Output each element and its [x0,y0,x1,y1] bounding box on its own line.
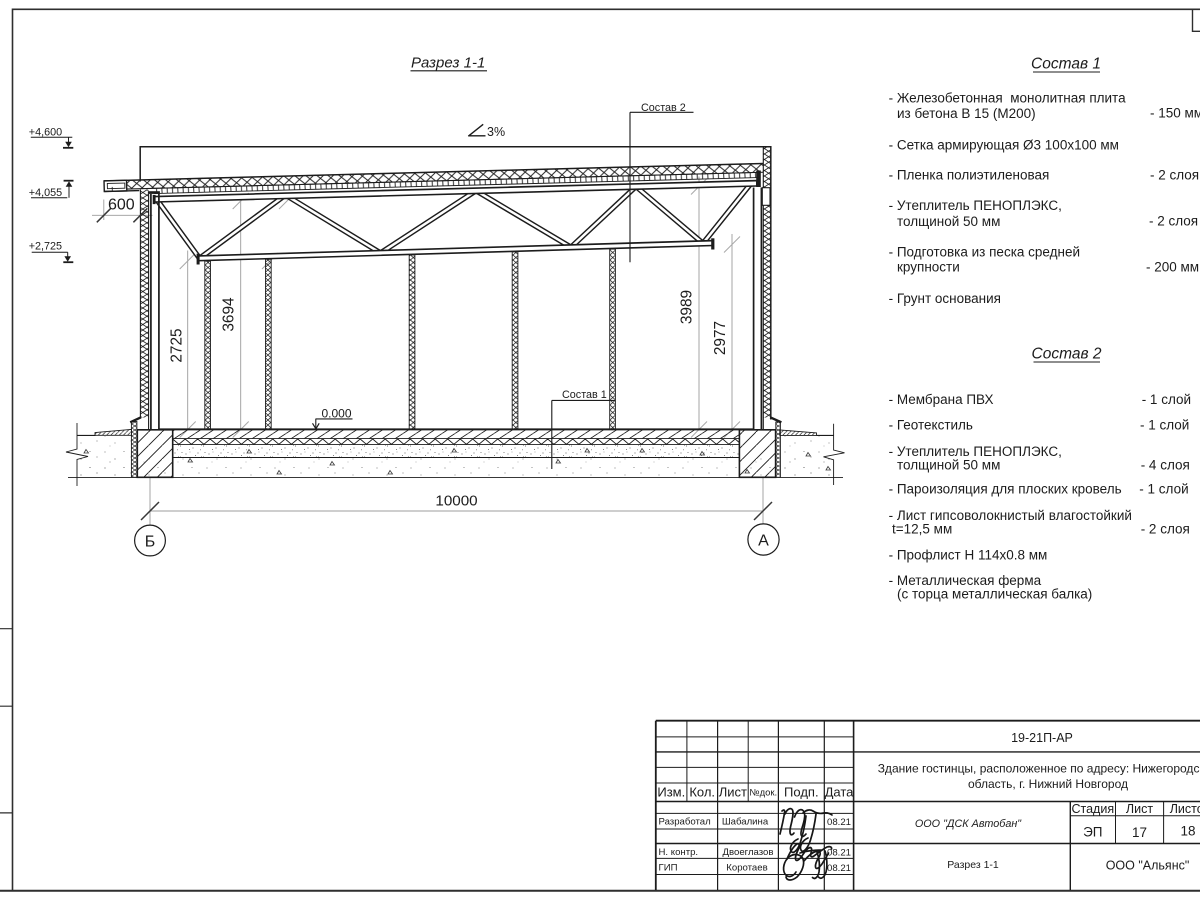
svg-text:2977: 2977 [712,321,729,355]
svg-text:19-21П-АР: 19-21П-АР [1011,731,1073,745]
svg-text:Здание гостинцы, расположенное: Здание гостинцы, расположенное по адресу… [878,762,1200,776]
svg-text:17: 17 [1132,825,1147,840]
svg-text:- Железобетонная монолитная п: - Железобетонная монолитная плита [889,90,1126,105]
svg-text:Состав 2: Состав 2 [1032,346,1102,363]
svg-text:Состав 1: Состав 1 [562,389,607,401]
svg-text:крупности: крупности [897,260,960,275]
svg-text:18: 18 [1180,824,1195,839]
svg-text:ЭП: ЭП [1083,825,1102,840]
svg-text:Шабалина: Шабалина [722,817,769,828]
svg-text:- 1 слой: - 1 слой [1140,417,1189,432]
svg-text:- 1 слой: - 1 слой [1142,392,1191,407]
svg-text:- Профлист Н 114х0.8 мм: - Профлист Н 114х0.8 мм [889,548,1048,563]
svg-text:600: 600 [108,197,135,214]
svg-text:- Пароизоляция для плоских кро: - Пароизоляция для плоских кровель [889,482,1122,497]
svg-text:(с торца металлическая балка): (с торца металлическая балка) [897,587,1092,602]
svg-text:- Утеплитель ПЕНОПЛЭКС,: - Утеплитель ПЕНОПЛЭКС, [889,198,1062,213]
svg-text:3694: 3694 [221,297,238,332]
svg-text:0.000: 0.000 [322,406,352,420]
svg-text:08.21: 08.21 [827,817,851,828]
svg-text:Разрез 1-1: Разрез 1-1 [947,859,999,871]
svg-text:Разработал: Разработал [659,817,711,828]
svg-text:Двоеглазов: Двоеглазов [723,847,774,858]
svg-text:А: А [758,533,769,550]
svg-text:Стадия: Стадия [1071,802,1114,816]
svg-text:- 4 слоя: - 4 слоя [1141,457,1190,472]
svg-text:Дата: Дата [825,785,855,800]
svg-text:Подп.: Подп. [784,785,819,800]
svg-text:3989: 3989 [679,290,696,324]
svg-text:Коротаев: Коротаев [726,863,767,874]
svg-text:08.21: 08.21 [827,848,851,859]
svg-text:Изм.: Изм. [657,785,685,800]
svg-text:2725: 2725 [169,328,186,362]
svg-text:08.21: 08.21 [827,863,851,874]
svg-text:толщиной 50 мм: толщиной 50 мм [897,458,1000,473]
svg-text:3%: 3% [487,125,505,139]
svg-text:Кол.: Кол. [689,785,715,800]
svg-text:- Пленка полиэтиленовая: - Пленка полиэтиленовая [889,168,1050,183]
svg-text:Лист: Лист [719,785,747,800]
svg-text:Лист: Лист [1126,802,1153,816]
svg-text:- 2 слоя: - 2 слоя [1141,521,1190,536]
svg-text:- Геотекстиль: - Геотекстиль [889,418,973,433]
svg-text:ГИП: ГИП [659,863,678,874]
svg-text:Н. контр.: Н. контр. [659,847,699,858]
svg-text:- 2 слоя: - 2 слоя [1149,214,1198,229]
svg-text:+2,725: +2,725 [29,241,62,253]
svg-text:10000: 10000 [435,493,477,510]
svg-text:область, г. Нижний Новгород: область, г. Нижний Новгород [968,777,1128,791]
svg-text:t=12,5 мм: t=12,5 мм [892,522,952,537]
svg-text:№док.: №док. [749,788,777,799]
svg-text:- 2 слоя: - 2 слоя [1150,168,1199,183]
svg-text:ООО "Альянс": ООО "Альянс" [1106,859,1190,873]
svg-text:Листов: Листов [1170,802,1200,816]
svg-text:- Сетка армирующая Ø3 100х100: - Сетка армирующая Ø3 100х100 мм [889,138,1119,153]
svg-text:- 200 мм: - 200 мм [1146,259,1199,274]
svg-text:- 150 мм: - 150 мм [1150,106,1200,121]
svg-text:- Подготовка из песка средней: - Подготовка из песка средней [889,245,1080,260]
svg-text:- 1 слой: - 1 слой [1139,481,1188,496]
svg-text:из бетона В 15 (М200): из бетона В 15 (М200) [897,106,1036,121]
svg-text:- Мембрана ПВХ: - Мембрана ПВХ [889,392,994,407]
svg-text:толщиной 50 мм: толщиной 50 мм [897,214,1000,229]
svg-text:- Грунт основания: - Грунт основания [889,291,1001,306]
svg-text:ООО "ДСК Автобан": ООО "ДСК Автобан" [915,818,1022,830]
svg-text:Б: Б [145,534,156,551]
svg-text:Состав 1: Состав 1 [1031,56,1101,73]
svg-text:Разрез 1-1: Разрез 1-1 [411,55,485,72]
